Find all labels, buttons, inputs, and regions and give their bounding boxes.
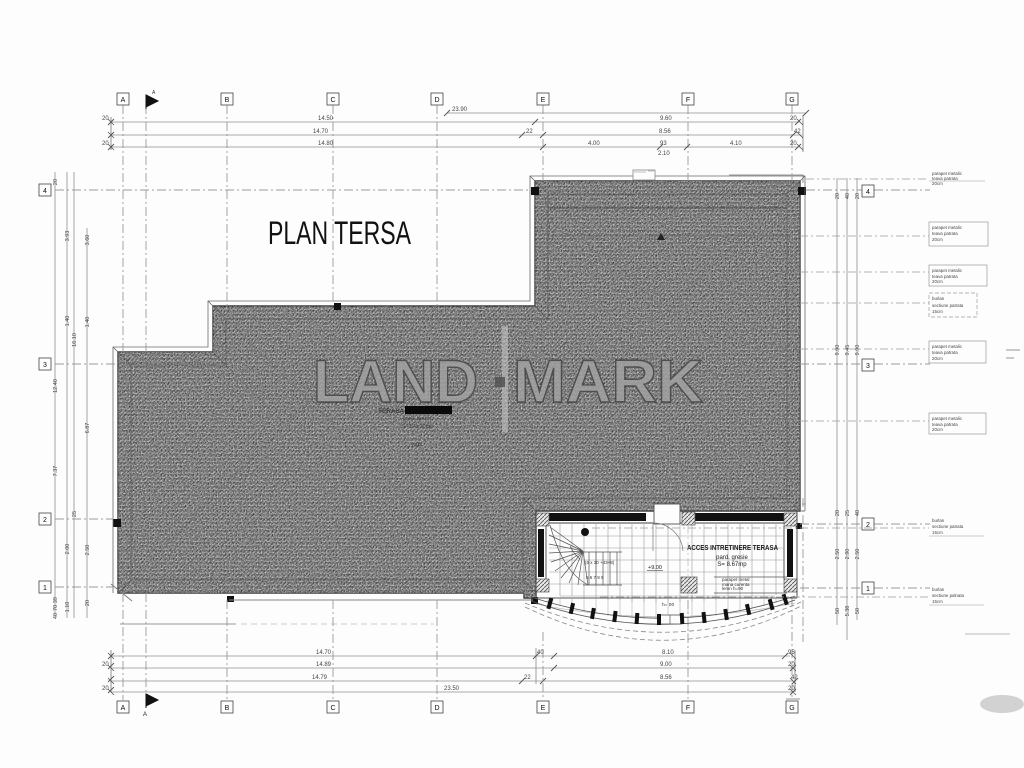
svg-text:3: 3	[866, 363, 870, 370]
svg-text:sectiune palnata: sectiune palnata	[932, 593, 965, 598]
svg-text:D: D	[434, 97, 439, 104]
svg-text:sectiune patrata: sectiune patrata	[932, 524, 964, 529]
svg-text:23.90: 23.90	[452, 107, 468, 113]
svg-text:42: 42	[794, 129, 801, 135]
svg-text:50: 50	[855, 608, 861, 614]
svg-text:8.10: 8.10	[662, 650, 674, 656]
svg-text:40: 40	[855, 510, 861, 516]
svg-text:teava patrata: teava patrata	[932, 231, 958, 236]
svg-text:4: 4	[866, 189, 870, 196]
svg-text:2.50: 2.50	[835, 549, 841, 560]
svg-text:teava patrata: teava patrata	[932, 350, 958, 355]
svg-text:20cm: 20cm	[932, 279, 943, 284]
svg-text:20cm: 20cm	[932, 237, 943, 242]
svg-text:4.10: 4.10	[730, 141, 742, 147]
svg-text:7.37: 7.37	[53, 466, 59, 477]
svg-text:4.00: 4.00	[588, 141, 600, 147]
svg-text:20: 20	[53, 179, 59, 185]
svg-text:B: B	[225, 97, 230, 104]
svg-text:25: 25	[845, 510, 851, 516]
svg-text:2: 2	[866, 522, 870, 529]
svg-text:8.56: 8.56	[660, 675, 672, 681]
svg-text:ACCES INTRETINERE TERASA: ACCES INTRETINERE TERASA	[687, 543, 778, 552]
svg-text:20: 20	[835, 510, 841, 516]
svg-text:6.87: 6.87	[85, 423, 91, 434]
svg-text:25: 25	[72, 511, 78, 517]
svg-text:2.00: 2.00	[65, 544, 71, 555]
svg-text:20: 20	[85, 600, 91, 606]
svg-text:240: 240	[411, 443, 422, 449]
svg-text:C: C	[330, 97, 335, 104]
svg-text:PLAN TERSA: PLAN TERSA	[268, 215, 411, 251]
svg-text:40: 40	[537, 650, 544, 656]
svg-text:burlan: burlan	[932, 296, 945, 301]
svg-text:1.40: 1.40	[65, 316, 71, 327]
svg-text:70 39: 70 39	[53, 597, 59, 611]
svg-text:23.50: 23.50	[444, 686, 460, 692]
svg-text:4: 4	[43, 188, 47, 195]
svg-text:E: E	[541, 705, 546, 712]
svg-text:20cm: 20cm	[932, 181, 943, 186]
svg-text:9.60: 9.60	[660, 116, 672, 122]
svg-text:14.70: 14.70	[313, 129, 329, 135]
svg-text:22: 22	[524, 675, 531, 681]
svg-text:2.10: 2.10	[658, 151, 670, 157]
svg-text:MARK: MARK	[513, 348, 703, 415]
svg-text:15cm: 15cm	[932, 309, 943, 314]
svg-text:parapet metalic: parapet metalic	[932, 344, 963, 349]
svg-text:20: 20	[790, 141, 797, 147]
svg-text:A: A	[121, 705, 126, 712]
svg-text:2.90: 2.90	[845, 549, 851, 560]
svg-text:2: 2	[43, 517, 47, 524]
svg-text:15cm: 15cm	[932, 530, 943, 535]
svg-text:15cm: 15cm	[932, 599, 943, 604]
svg-text:50: 50	[835, 608, 841, 614]
svg-text:S=173.20mp: S=173.20mp	[402, 424, 433, 430]
svg-text:14.50: 14.50	[318, 116, 334, 122]
svg-text:LAND: LAND	[313, 348, 478, 415]
svg-text:S= 8.67mp: S= 8.67mp	[717, 562, 747, 568]
svg-text:3: 3	[43, 362, 47, 369]
svg-text:2.50: 2.50	[855, 549, 861, 560]
svg-text:1: 1	[43, 585, 47, 592]
svg-text:F: F	[686, 705, 690, 712]
svg-text:20: 20	[835, 193, 841, 199]
svg-text:burlan: burlan	[932, 587, 945, 592]
svg-text:+9.00: +9.00	[648, 565, 662, 571]
svg-text:40: 40	[53, 613, 59, 619]
svg-text:1.40: 1.40	[85, 317, 91, 328]
svg-text:pard. gresie: pard. gresie	[716, 555, 748, 561]
svg-text:14.79: 14.79	[312, 675, 328, 681]
svg-text:parapet metalic: parapet metalic	[932, 416, 963, 421]
svg-text:9.45: 9.45	[845, 345, 851, 356]
svg-text:lemn h=90: lemn h=90	[722, 586, 744, 591]
svg-text:5.38: 5.38	[845, 606, 851, 617]
svg-text:12.40: 12.40	[53, 379, 59, 393]
svg-text:14.80: 14.80	[318, 141, 334, 147]
svg-text:E: E	[541, 97, 546, 104]
svg-text:2.50: 2.50	[85, 545, 91, 556]
svg-text:3.60: 3.60	[85, 235, 91, 246]
svg-text:C: C	[330, 705, 335, 712]
svg-text:G: G	[789, 705, 794, 712]
svg-text:14.89: 14.89	[316, 662, 332, 668]
svg-text:pard. beton: pard. beton	[403, 416, 431, 422]
svg-text:5 6 7 8 9: 5 6 7 8 9	[586, 575, 604, 580]
svg-text:parapet metalic: parapet metalic	[932, 225, 963, 230]
svg-text:G: G	[789, 97, 794, 104]
svg-text:1: 1	[866, 586, 870, 593]
svg-text:8.56: 8.56	[659, 129, 671, 135]
svg-text:40: 40	[845, 193, 851, 199]
svg-text:20cm: 20cm	[932, 356, 943, 361]
svg-text:3.93: 3.93	[65, 231, 71, 242]
svg-text:parapet metalic: parapet metalic	[932, 268, 963, 273]
svg-text:1.10: 1.10	[65, 602, 71, 613]
svg-text:B: B	[225, 705, 230, 712]
svg-text:20cm: 20cm	[932, 427, 943, 432]
svg-text:16.10: 16.10	[72, 333, 78, 347]
svg-text:9.90: 9.90	[855, 345, 861, 356]
svg-text:22: 22	[526, 129, 533, 135]
svg-text:F: F	[686, 97, 690, 104]
svg-text:A: A	[143, 712, 147, 718]
svg-text:20: 20	[790, 116, 797, 122]
svg-text:9.90: 9.90	[835, 345, 841, 356]
svg-text:burlan: burlan	[932, 518, 945, 523]
svg-text:A: A	[121, 97, 126, 104]
svg-text:20: 20	[855, 193, 861, 199]
svg-text:D: D	[434, 705, 439, 712]
svg-text:14.70: 14.70	[316, 650, 332, 656]
svg-text:sectiune patrata: sectiune patrata	[932, 303, 964, 308]
svg-text:9.00: 9.00	[660, 662, 672, 668]
svg-text:(6 x 30 +43+8): (6 x 30 +43+8)	[585, 560, 615, 565]
